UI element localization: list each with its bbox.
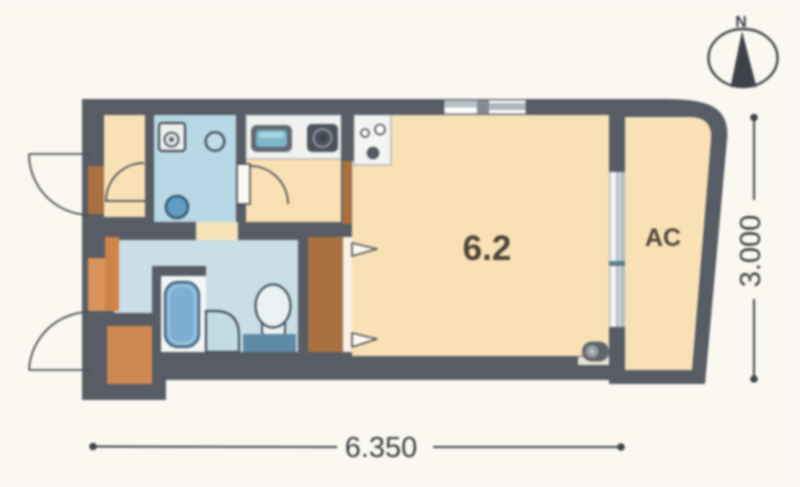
svg-text:6.350: 6.350 bbox=[345, 432, 418, 464]
svg-text:AC: AC bbox=[645, 224, 681, 252]
svg-text:N: N bbox=[735, 14, 747, 31]
svg-text:3.000: 3.000 bbox=[735, 215, 767, 288]
svg-text:6.2: 6.2 bbox=[463, 229, 512, 268]
